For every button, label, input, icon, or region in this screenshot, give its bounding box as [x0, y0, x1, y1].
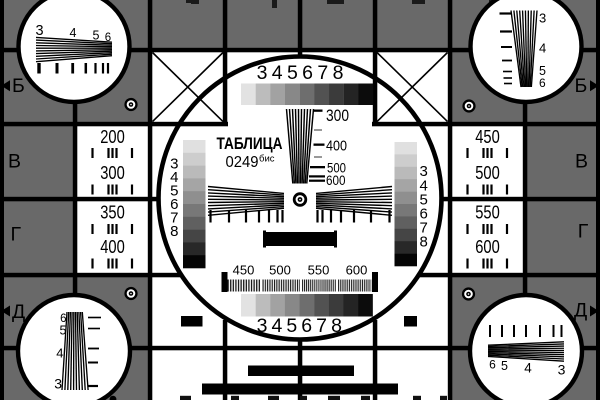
svg-text:3: 3 — [35, 23, 43, 39]
svg-text:300: 300 — [100, 162, 125, 183]
svg-text:5: 5 — [60, 324, 67, 338]
svg-text:6: 6 — [489, 358, 496, 372]
svg-text:8: 8 — [333, 62, 344, 84]
svg-text:3: 3 — [257, 62, 268, 84]
svg-text:400: 400 — [100, 236, 125, 257]
svg-text:Б: Б — [575, 75, 588, 97]
svg-text:4: 4 — [56, 346, 63, 361]
svg-text:350: 350 — [100, 201, 125, 222]
svg-text:3: 3 — [558, 362, 566, 378]
svg-text:Д: Д — [574, 300, 587, 322]
svg-text:Б: Б — [12, 75, 25, 97]
svg-text:4: 4 — [539, 41, 546, 56]
svg-text:6: 6 — [105, 32, 111, 44]
svg-text:600: 600 — [475, 236, 500, 257]
svg-text:бис: бис — [259, 154, 275, 165]
svg-text:В: В — [8, 151, 21, 173]
svg-text:5: 5 — [287, 62, 298, 84]
svg-text:Д: Д — [12, 301, 25, 323]
svg-text:3: 3 — [539, 11, 546, 26]
svg-text:450: 450 — [475, 126, 500, 147]
svg-text:300: 300 — [326, 106, 349, 125]
svg-text:8: 8 — [331, 315, 342, 337]
svg-text:8: 8 — [420, 234, 428, 251]
svg-text:7: 7 — [317, 62, 328, 84]
svg-text:5: 5 — [286, 315, 297, 337]
svg-text:8: 8 — [170, 223, 178, 240]
svg-text:4: 4 — [271, 315, 282, 337]
svg-text:500: 500 — [475, 162, 500, 183]
svg-text:500: 500 — [269, 263, 291, 278]
svg-text:400: 400 — [326, 137, 347, 154]
svg-text:550: 550 — [475, 201, 500, 222]
svg-text:600: 600 — [346, 263, 368, 278]
svg-text:0249: 0249 — [226, 154, 259, 171]
svg-text:4: 4 — [524, 361, 532, 376]
svg-text:Г: Г — [578, 221, 589, 243]
svg-text:5: 5 — [501, 359, 508, 373]
svg-text:Г: Г — [11, 224, 22, 246]
svg-text:3: 3 — [257, 315, 268, 337]
svg-text:4: 4 — [272, 62, 283, 84]
svg-text:600: 600 — [326, 173, 346, 188]
svg-text:200: 200 — [100, 126, 125, 147]
svg-text:7: 7 — [316, 315, 327, 337]
svg-text:6: 6 — [302, 62, 313, 84]
svg-text:В: В — [575, 151, 588, 173]
svg-text:ТАБЛИЦА: ТАБЛИЦА — [217, 135, 283, 153]
svg-text:6: 6 — [301, 315, 312, 337]
svg-text:5: 5 — [93, 29, 100, 43]
svg-text:450: 450 — [233, 263, 255, 278]
svg-text:4: 4 — [70, 26, 77, 40]
svg-text:550: 550 — [308, 263, 330, 278]
svg-text:6: 6 — [539, 76, 546, 90]
svg-text:3: 3 — [54, 376, 62, 392]
